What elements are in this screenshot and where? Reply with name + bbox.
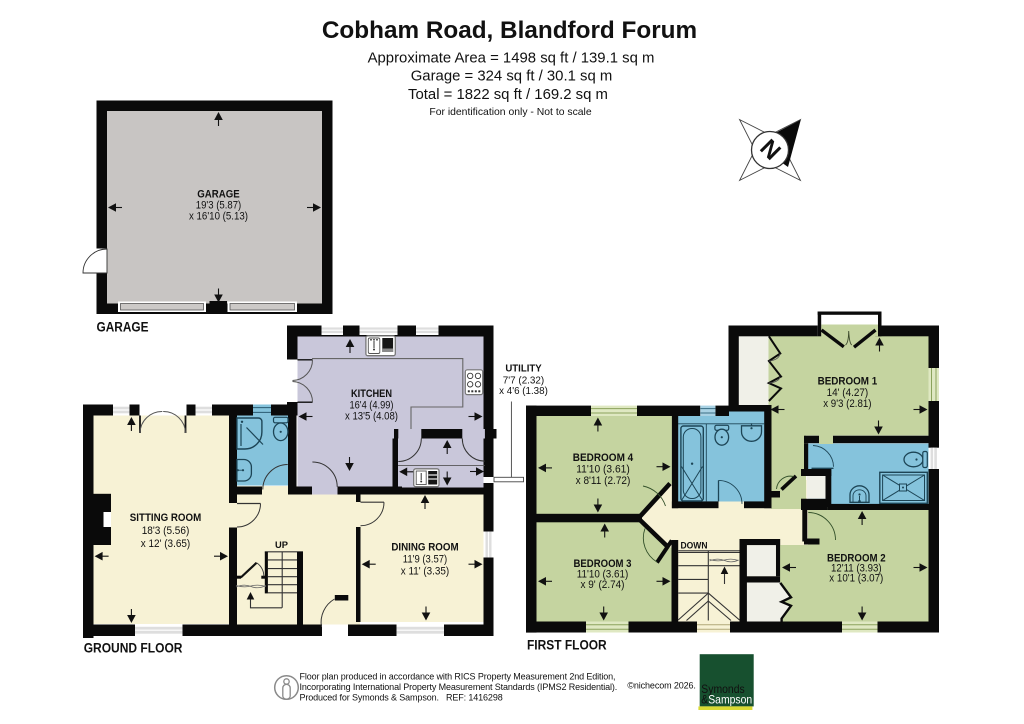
svg-text:Garage = 324 sq ft / 30.1 sq m: Garage = 324 sq ft / 30.1 sq m [411, 68, 613, 84]
svg-text:UP: UP [275, 540, 288, 550]
svg-text:Cobham Road, Blandford Forum: Cobham Road, Blandford Forum [322, 17, 697, 44]
svg-text:x 13'5 (4.08): x 13'5 (4.08) [345, 411, 398, 423]
svg-text:&Sampson: &Sampson [701, 694, 752, 707]
svg-text:Floor plan produced in accorda: Floor plan produced in accordance with R… [300, 672, 616, 682]
svg-text:18'3 (5.56): 18'3 (5.56) [142, 525, 190, 537]
svg-text:BEDROOM 4: BEDROOM 4 [573, 452, 633, 464]
svg-text:Incorporating International Pr: Incorporating International Property Mea… [300, 682, 618, 692]
svg-text:11'9 (3.57): 11'9 (3.57) [403, 553, 447, 565]
svg-text:FIRST FLOOR: FIRST FLOOR [527, 638, 607, 653]
svg-text:x 16'10 (5.13): x 16'10 (5.13) [189, 210, 248, 222]
svg-text:x 9'3 (2.81): x 9'3 (2.81) [823, 398, 871, 410]
svg-text:DOWN: DOWN [681, 540, 708, 550]
svg-text:x 4'6 (1.38): x 4'6 (1.38) [499, 386, 548, 397]
svg-text:x 10'1 (3.07): x 10'1 (3.07) [829, 573, 883, 585]
svg-text:x 12' (3.65): x 12' (3.65) [141, 538, 190, 550]
svg-text:Approximate Area = 1498 sq ft: Approximate Area = 1498 sq ft / 139.1 sq… [368, 50, 655, 66]
svg-text:7'7 (2.32): 7'7 (2.32) [503, 375, 544, 386]
svg-text:Produced for Symonds & Sampson: Produced for Symonds & Sampson. REF: 141… [300, 693, 503, 703]
svg-text:UTILITY: UTILITY [505, 363, 541, 374]
svg-text:KITCHEN: KITCHEN [351, 388, 392, 400]
svg-text:SITTING ROOM: SITTING ROOM [130, 512, 201, 524]
svg-text:GARAGE: GARAGE [97, 320, 149, 335]
svg-text:©nichecom 2026.: ©nichecom 2026. [627, 681, 695, 691]
svg-text:Total = 1822 sq ft / 169.2 sq: Total = 1822 sq ft / 169.2 sq m [408, 87, 608, 103]
svg-text:14' (4.27): 14' (4.27) [827, 387, 869, 399]
svg-text:For identification only - Not: For identification only - Not to scale [429, 107, 592, 118]
svg-text:x 8'11 (2.72): x 8'11 (2.72) [576, 475, 631, 487]
svg-text:x 9' (2.74): x 9' (2.74) [581, 579, 625, 591]
svg-text:BEDROOM 1: BEDROOM 1 [818, 376, 878, 388]
svg-text:x 11' (3.35): x 11' (3.35) [401, 565, 449, 577]
svg-text:11'10 (3.61): 11'10 (3.61) [576, 464, 630, 476]
svg-text:16'4 (4.99): 16'4 (4.99) [350, 399, 394, 411]
svg-text:DINING ROOM: DINING ROOM [391, 542, 458, 554]
svg-text:GROUND FLOOR: GROUND FLOOR [84, 641, 183, 656]
